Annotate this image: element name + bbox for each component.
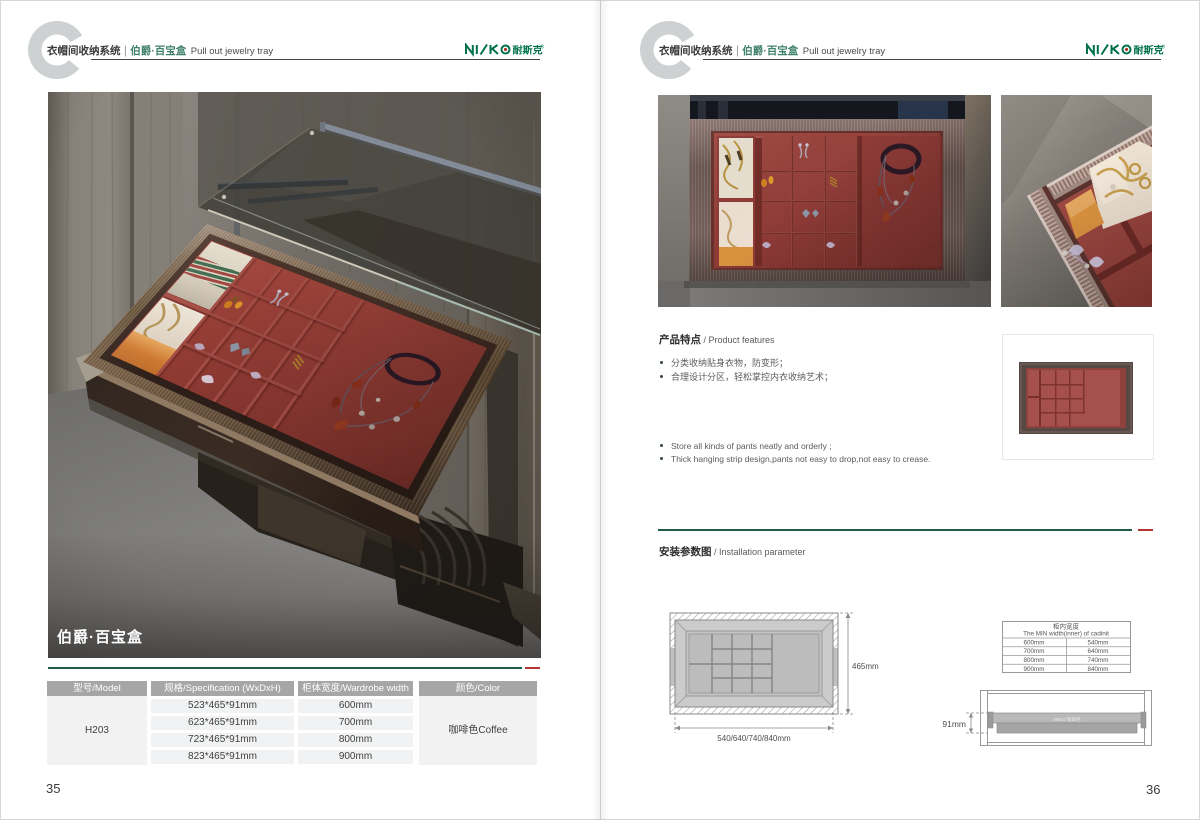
svg-text:The MIN width(inner) of cadini: The MIN width(inner) of cadinit — [1023, 631, 1109, 638]
svg-text:®: ® — [541, 44, 545, 51]
svg-text:91mm: 91mm — [942, 719, 966, 729]
svg-text:900mm: 900mm — [1024, 666, 1045, 673]
svg-text:800mm: 800mm — [1024, 657, 1045, 664]
svg-text:600mm: 600mm — [1024, 639, 1045, 646]
svg-text:NI/KO 耐斯克: NI/KO 耐斯克 — [1053, 716, 1081, 723]
svg-text:540mm: 540mm — [1088, 639, 1109, 646]
svg-text:柜内宽度: 柜内宽度 — [1053, 622, 1080, 631]
svg-text:700mm: 700mm — [1024, 648, 1045, 655]
svg-text:耐斯克: 耐斯克 — [512, 44, 542, 57]
svg-text:465mm: 465mm — [852, 662, 879, 671]
svg-text:540/640/740/840mm: 540/640/740/840mm — [717, 734, 791, 743]
svg-text:840mm: 840mm — [1088, 666, 1109, 673]
svg-text:640mm: 640mm — [1088, 648, 1109, 655]
svg-text:740mm: 740mm — [1088, 657, 1109, 664]
